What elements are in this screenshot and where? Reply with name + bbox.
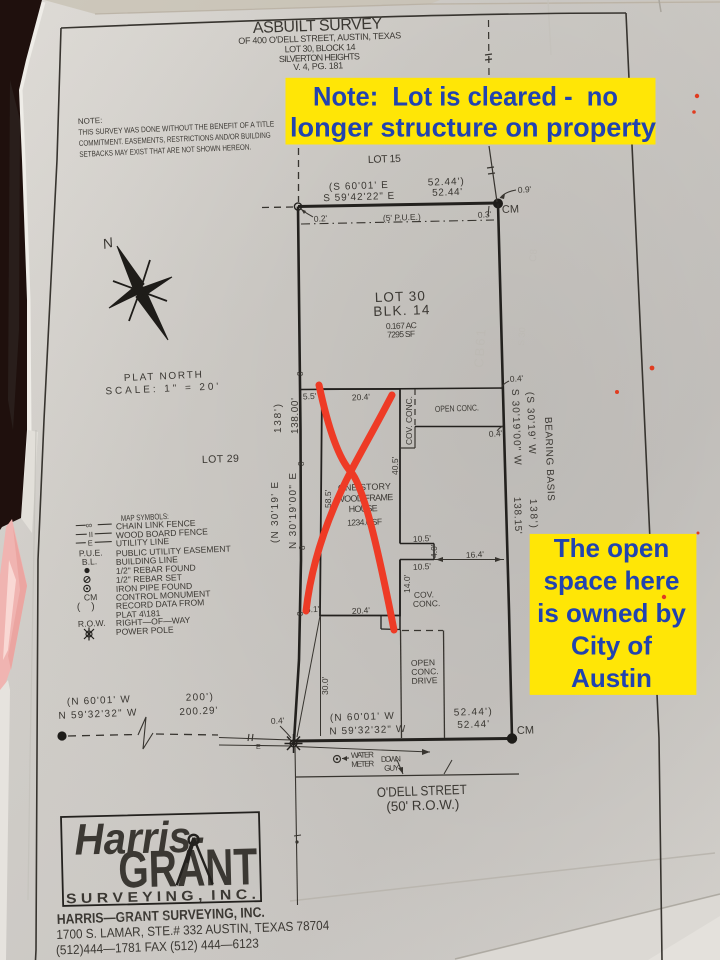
svg-text:E: E [256,744,261,751]
svg-text:10.5': 10.5' [413,533,432,544]
svg-text:10.5': 10.5' [413,561,432,572]
svg-text:200.29': 200.29' [179,705,218,718]
svg-text:The open: The open [554,533,670,563]
svg-text:C8: C8 [528,248,540,262]
svg-text:40.5': 40.5' [390,456,400,475]
svg-text:OPEN CONC.: OPEN CONC. [435,402,479,414]
svg-text:Note: Lot is cleared - no: Note: Lot is cleared - no [313,81,618,111]
svg-text:20.4': 20.4' [352,605,371,616]
svg-text:8: 8 [298,545,307,550]
svg-text:0.2': 0.2' [313,213,327,224]
svg-text:52.44': 52.44' [432,187,462,199]
svg-text:(50' R.O.W.): (50' R.O.W.) [386,797,459,815]
svg-text:LOT 29: LOT 29 [202,453,240,466]
svg-text:0.4': 0.4' [488,428,502,439]
svg-text:1234.6 SF: 1234.6 SF [347,516,382,527]
svg-text:Austin: Austin [571,663,652,693]
svg-text:138.15': 138.15' [511,497,523,534]
svg-text:V. 4, PG. 181: V. 4, PG. 181 [293,60,343,72]
svg-text:R.O.W.: R.O.W. [78,618,106,629]
svg-text:DRIVE: DRIVE [411,675,438,686]
svg-text:N 60 W: N 60 W [120,912,175,924]
svg-text:S 30: S 30 [516,327,527,346]
svg-text:GUY: GUY [384,763,400,773]
svg-text:BLK. 14: BLK. 14 [373,302,430,319]
svg-text:City of: City of [571,631,652,661]
svg-text:is owned by: is owned by [537,598,686,628]
svg-text:0.3': 0.3' [477,209,491,220]
svg-text:∞: ∞ [86,520,93,530]
svg-text:( ): ( ) [77,601,95,613]
svg-text:METER: METER [351,759,375,769]
svg-text:14.0': 14.0' [402,574,412,593]
svg-text:8: 8 [297,461,306,466]
svg-text:7295 SF: 7295 SF [387,329,415,340]
svg-text:CONC.: CONC. [413,598,441,609]
svg-text:138.00': 138.00' [290,398,301,434]
svg-text:NOTE:: NOTE: [78,116,103,126]
svg-text:(S 30'19' W: (S 30'19' W [524,392,537,455]
svg-text:(N 30'19' E: (N 30'19' E [270,482,281,543]
svg-text:16.4': 16.4' [466,549,485,560]
svg-text:0.9': 0.9' [517,184,531,195]
svg-text:52.44': 52.44' [457,719,489,731]
svg-text:20.4': 20.4' [352,392,371,403]
svg-text:4.0': 4.0' [429,544,439,558]
svg-text:E: E [88,538,93,547]
svg-text:longer structure on property: longer structure on property [290,112,656,142]
svg-text:space here: space here [544,566,680,596]
svg-text:CB61: CB61 [471,327,489,368]
svg-text:0.4': 0.4' [271,715,285,726]
svg-text:8: 8 [296,371,305,376]
svg-text:LOT 15: LOT 15 [368,153,402,166]
svg-text:(5' P.U.E.): (5' P.U.E.) [383,212,421,223]
svg-text:200'): 200') [186,692,213,704]
svg-text:B.L.: B.L. [82,556,98,567]
svg-text:5.5': 5.5' [303,391,317,402]
svg-text:30.0': 30.0' [320,676,330,695]
svg-text:CM: CM [517,724,535,737]
svg-text:0.4': 0.4' [509,373,523,384]
svg-text:CM: CM [502,203,520,216]
svg-text:(N 60'01' W: (N 60'01' W [330,711,395,724]
svg-text:COV. CONC.: COV. CONC. [404,396,414,445]
